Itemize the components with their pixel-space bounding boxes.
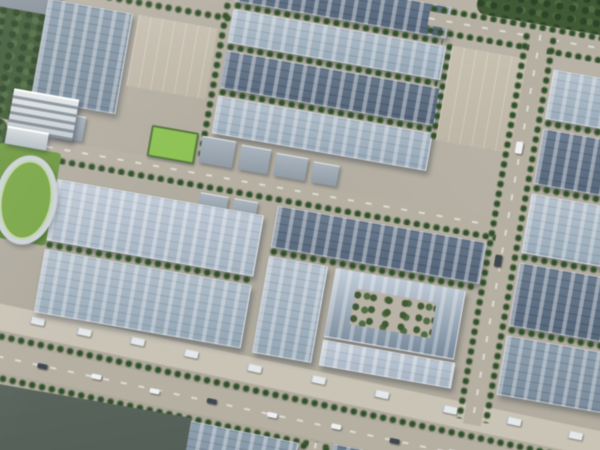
parking-lot-north — [126, 15, 217, 100]
warehouse — [252, 256, 328, 363]
small-building — [238, 145, 272, 175]
small-building — [273, 153, 309, 181]
small-building — [310, 161, 339, 186]
industrial-park-scene — [0, 0, 600, 450]
aerial-render-viewport — [0, 0, 600, 450]
small-building — [198, 136, 236, 168]
